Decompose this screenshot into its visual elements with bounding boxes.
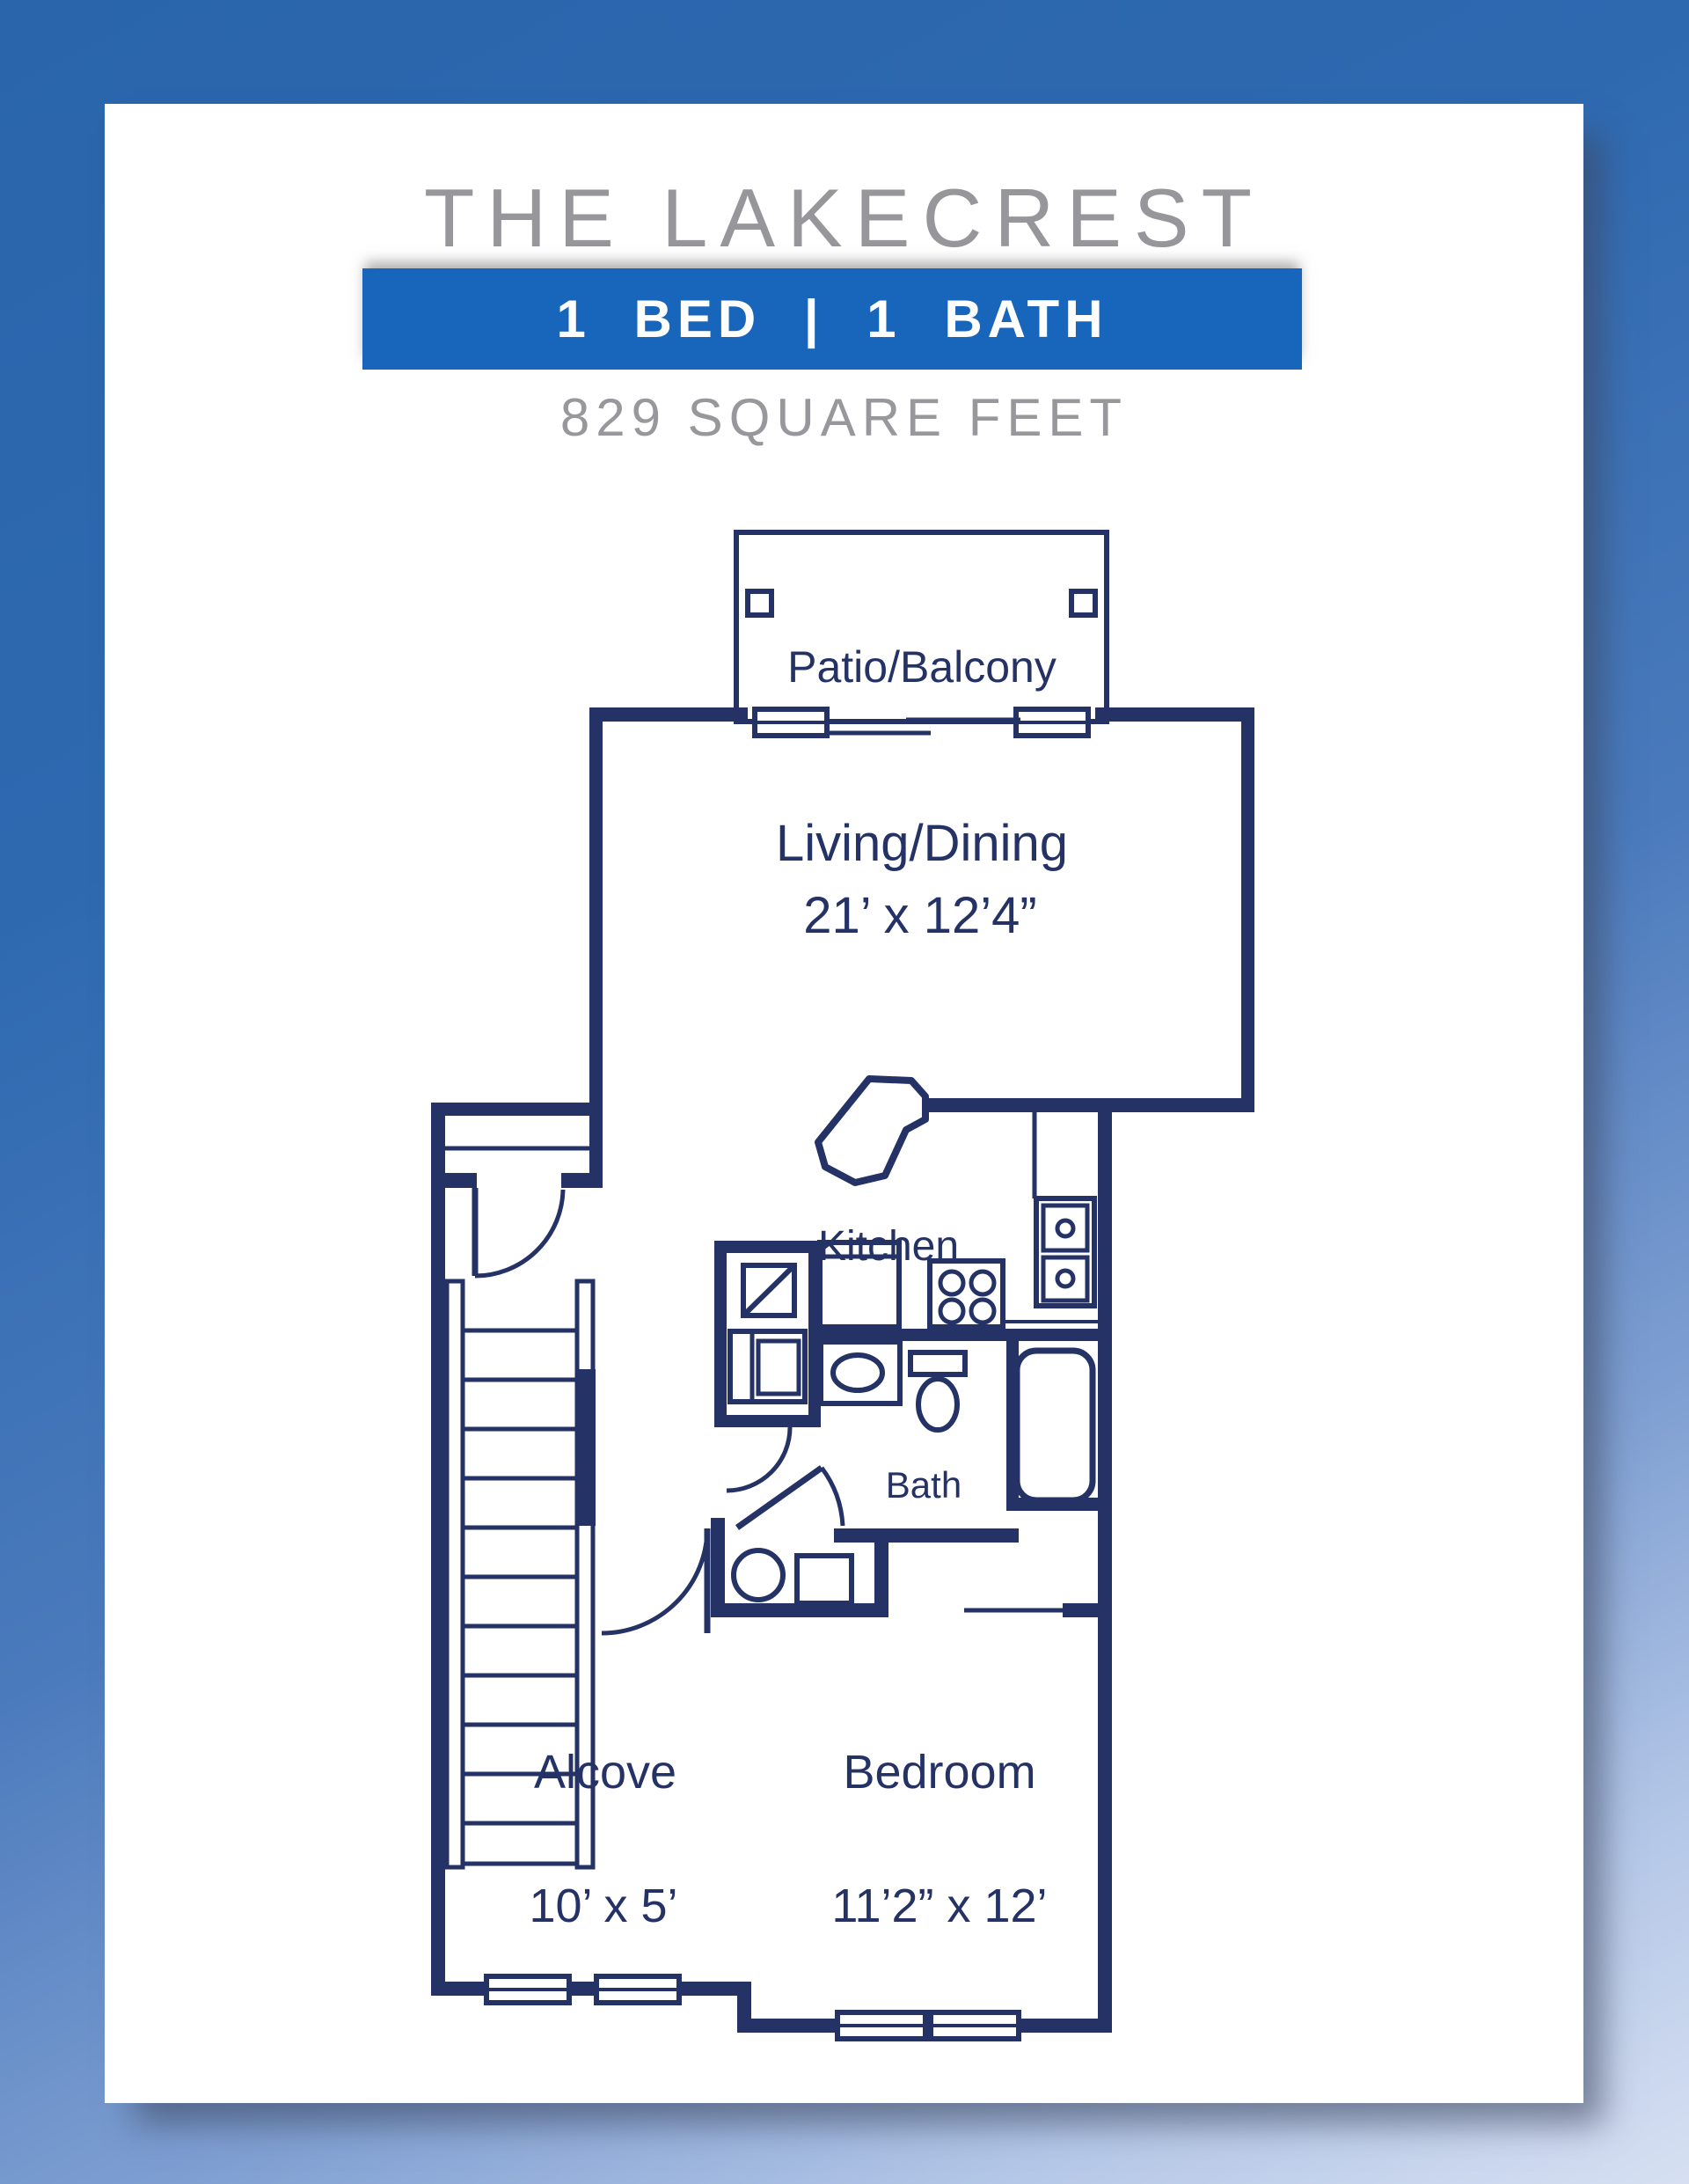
- wall-nook-left: [711, 1518, 725, 1617]
- stair-rail-left: [447, 1281, 463, 1867]
- wall-right-lower: [1098, 1098, 1112, 2033]
- bath: Bath: [821, 1342, 1093, 1506]
- oven-upper-knob: [1057, 1220, 1073, 1236]
- nook-basin-icon: [734, 1550, 783, 1600]
- patio-outline: [736, 532, 1107, 722]
- kitchen-label: Kitchen: [818, 1223, 959, 1270]
- stove-burners: [940, 1272, 994, 1323]
- bedroom-dims: 11’2” x 12’: [831, 1880, 1047, 1932]
- oven-lower-knob: [1057, 1271, 1073, 1286]
- entry-door-arc: [475, 1190, 563, 1276]
- patio-balcony: Patio/Balcony: [736, 532, 1107, 722]
- wall-top-left: [589, 707, 748, 722]
- wall-entry-top: [431, 1103, 603, 1116]
- hall-door-arc: [727, 1427, 790, 1491]
- wall-living-bottom: [922, 1098, 1254, 1112]
- patio-post-right: [1071, 591, 1095, 615]
- wall-nook-right: [874, 1543, 888, 1617]
- living-dims: 21’ x 12’4”: [803, 887, 1036, 944]
- nook-cabinet-icon: [797, 1556, 852, 1603]
- living-label: Living/Dining: [776, 815, 1068, 872]
- page-background: THE LAKECREST 1 BED | 1 BATH 829 SQUARE …: [0, 0, 1689, 2184]
- wall-entry-door-right: [561, 1173, 603, 1188]
- wall-bath-bottom: [834, 1528, 1019, 1543]
- bedroom-label: Bedroom: [843, 1746, 1035, 1799]
- kitchen: Kitchen: [818, 1079, 1098, 1327]
- wall-alcove-bottom: [431, 1982, 751, 1996]
- wall-bedroom-top-right: [1063, 1603, 1112, 1617]
- floor-plan: Patio/Balcony: [0, 0, 1689, 2184]
- bar-counter: [818, 1079, 925, 1183]
- alcove-label: Alcove: [534, 1746, 676, 1799]
- patio-post-left: [748, 591, 771, 615]
- wall-living-left: [589, 707, 603, 1188]
- alcove-door-arc: [602, 1528, 707, 1633]
- utility-closet: [720, 1247, 815, 1421]
- sink-icon: [833, 1355, 882, 1390]
- oven-lower: [1043, 1257, 1087, 1301]
- bath-door-leaf: [737, 1468, 822, 1528]
- bath-door-arc: [822, 1468, 843, 1526]
- toilet-tank: [910, 1352, 965, 1374]
- wall-left-exterior: [431, 1103, 445, 1996]
- oven-upper: [1043, 1206, 1087, 1250]
- linen-nook: [734, 1550, 852, 1603]
- alcove-dims: 10’ x 5’: [529, 1880, 677, 1932]
- toilet-bowl: [918, 1379, 957, 1430]
- wall-living-right: [1241, 707, 1254, 1112]
- bath-label: Bath: [886, 1464, 961, 1506]
- bathtub-icon: [1017, 1351, 1093, 1500]
- stair-handrail: [579, 1369, 596, 1526]
- wall-kitchen-bath: [821, 1329, 1100, 1341]
- wall-entry-door-left: [431, 1173, 477, 1188]
- patio-label: Patio/Balcony: [787, 642, 1057, 692]
- wall-top-right: [1095, 707, 1254, 722]
- entry: [445, 1148, 589, 1276]
